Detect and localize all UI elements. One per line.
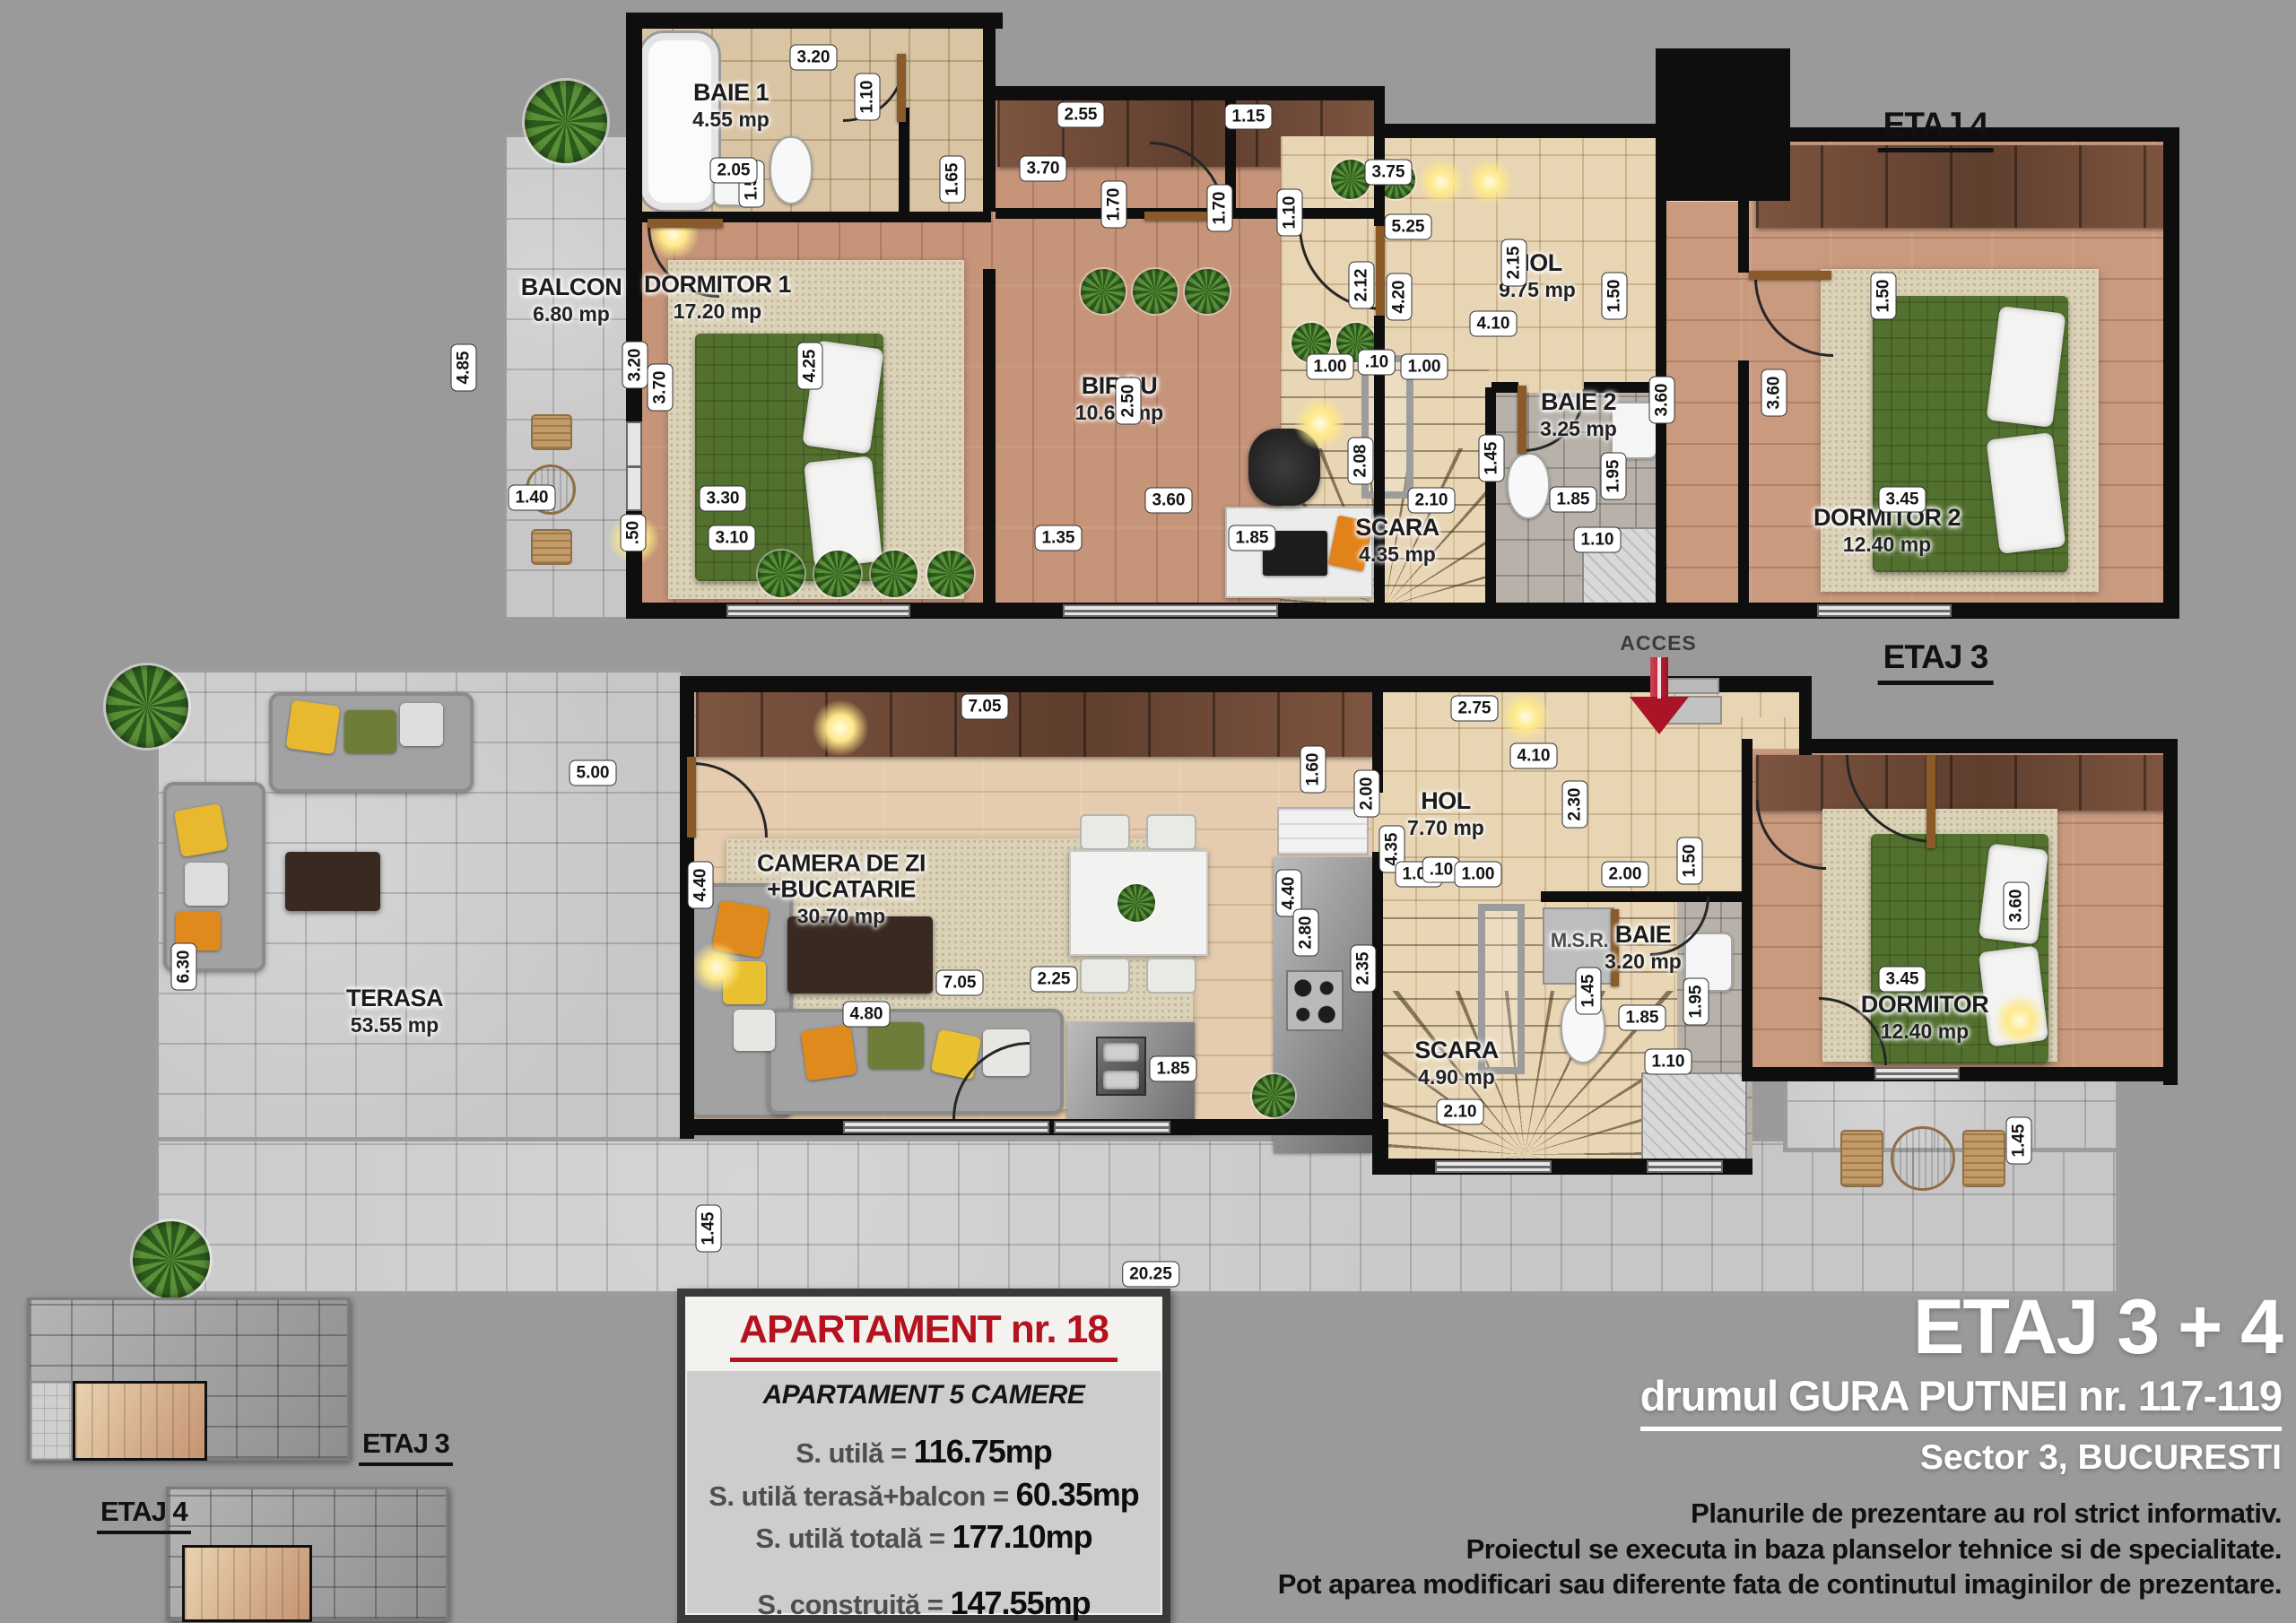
- disclaimer-line: Proiectul se executa in baza planselor t…: [936, 1532, 2282, 1567]
- address-floors: ETAJ 3 + 4: [1178, 1289, 2282, 1366]
- area-label: S. construită =: [757, 1589, 950, 1620]
- mini-plan-etaj3: [27, 1298, 350, 1461]
- floor-tag-etaj4: ETAJ 4: [1878, 106, 1994, 152]
- mini-terrace: [30, 1381, 73, 1461]
- area-value: 116.75mp: [914, 1433, 1052, 1470]
- address-street: drumul GURA PUTNEI nr. 117-119: [1640, 1371, 2282, 1431]
- disclaimer: Planurile de prezentare au rol strict in…: [936, 1496, 2282, 1602]
- area-label: S. utilă =: [796, 1437, 913, 1469]
- mini-plan-etaj4: [166, 1487, 448, 1621]
- acces-arrow-head: [1630, 697, 1689, 734]
- disclaimer-line: Planurile de prezentare au rol strict in…: [936, 1496, 2282, 1532]
- apartment-title: APARTAMENT nr. 18: [730, 1307, 1118, 1362]
- footer: ETAJ 3 ETAJ 4 APARTAMENT nr. 18 APARTAME…: [0, 0, 2296, 1623]
- mini-tag-etaj4: ETAJ 4: [97, 1496, 191, 1534]
- apartment-subtitle: APARTAMENT 5 CAMERE: [685, 1380, 1162, 1410]
- floorplan-poster: ETAJ 4 BALCON6.80 mpBAIE 14.55 mpDORMITO…: [0, 0, 2296, 1623]
- mini-highlight-apartment: [182, 1545, 312, 1622]
- address-block: ETAJ 3 + 4 drumul GURA PUTNEI nr. 117-11…: [1178, 1289, 2282, 1478]
- area-label: S. utilă totală =: [755, 1523, 952, 1554]
- address-sector: Sector 3, BUCURESTI: [1178, 1438, 2282, 1478]
- mini-tag-etaj3: ETAJ 3: [359, 1428, 453, 1466]
- mini-highlight-apartment: [73, 1381, 207, 1461]
- floor-tag-etaj3: ETAJ 3: [1878, 638, 1994, 685]
- acces-arrow-stripe: [1657, 657, 1661, 699]
- disclaimer-line: Pot aparea modificari sau diferente fata…: [936, 1567, 2282, 1602]
- area-row: S. utilă = 116.75mp: [685, 1430, 1162, 1473]
- info-title-bar: APARTAMENT nr. 18: [685, 1297, 1162, 1371]
- acces-label: ACCES: [1620, 631, 1697, 655]
